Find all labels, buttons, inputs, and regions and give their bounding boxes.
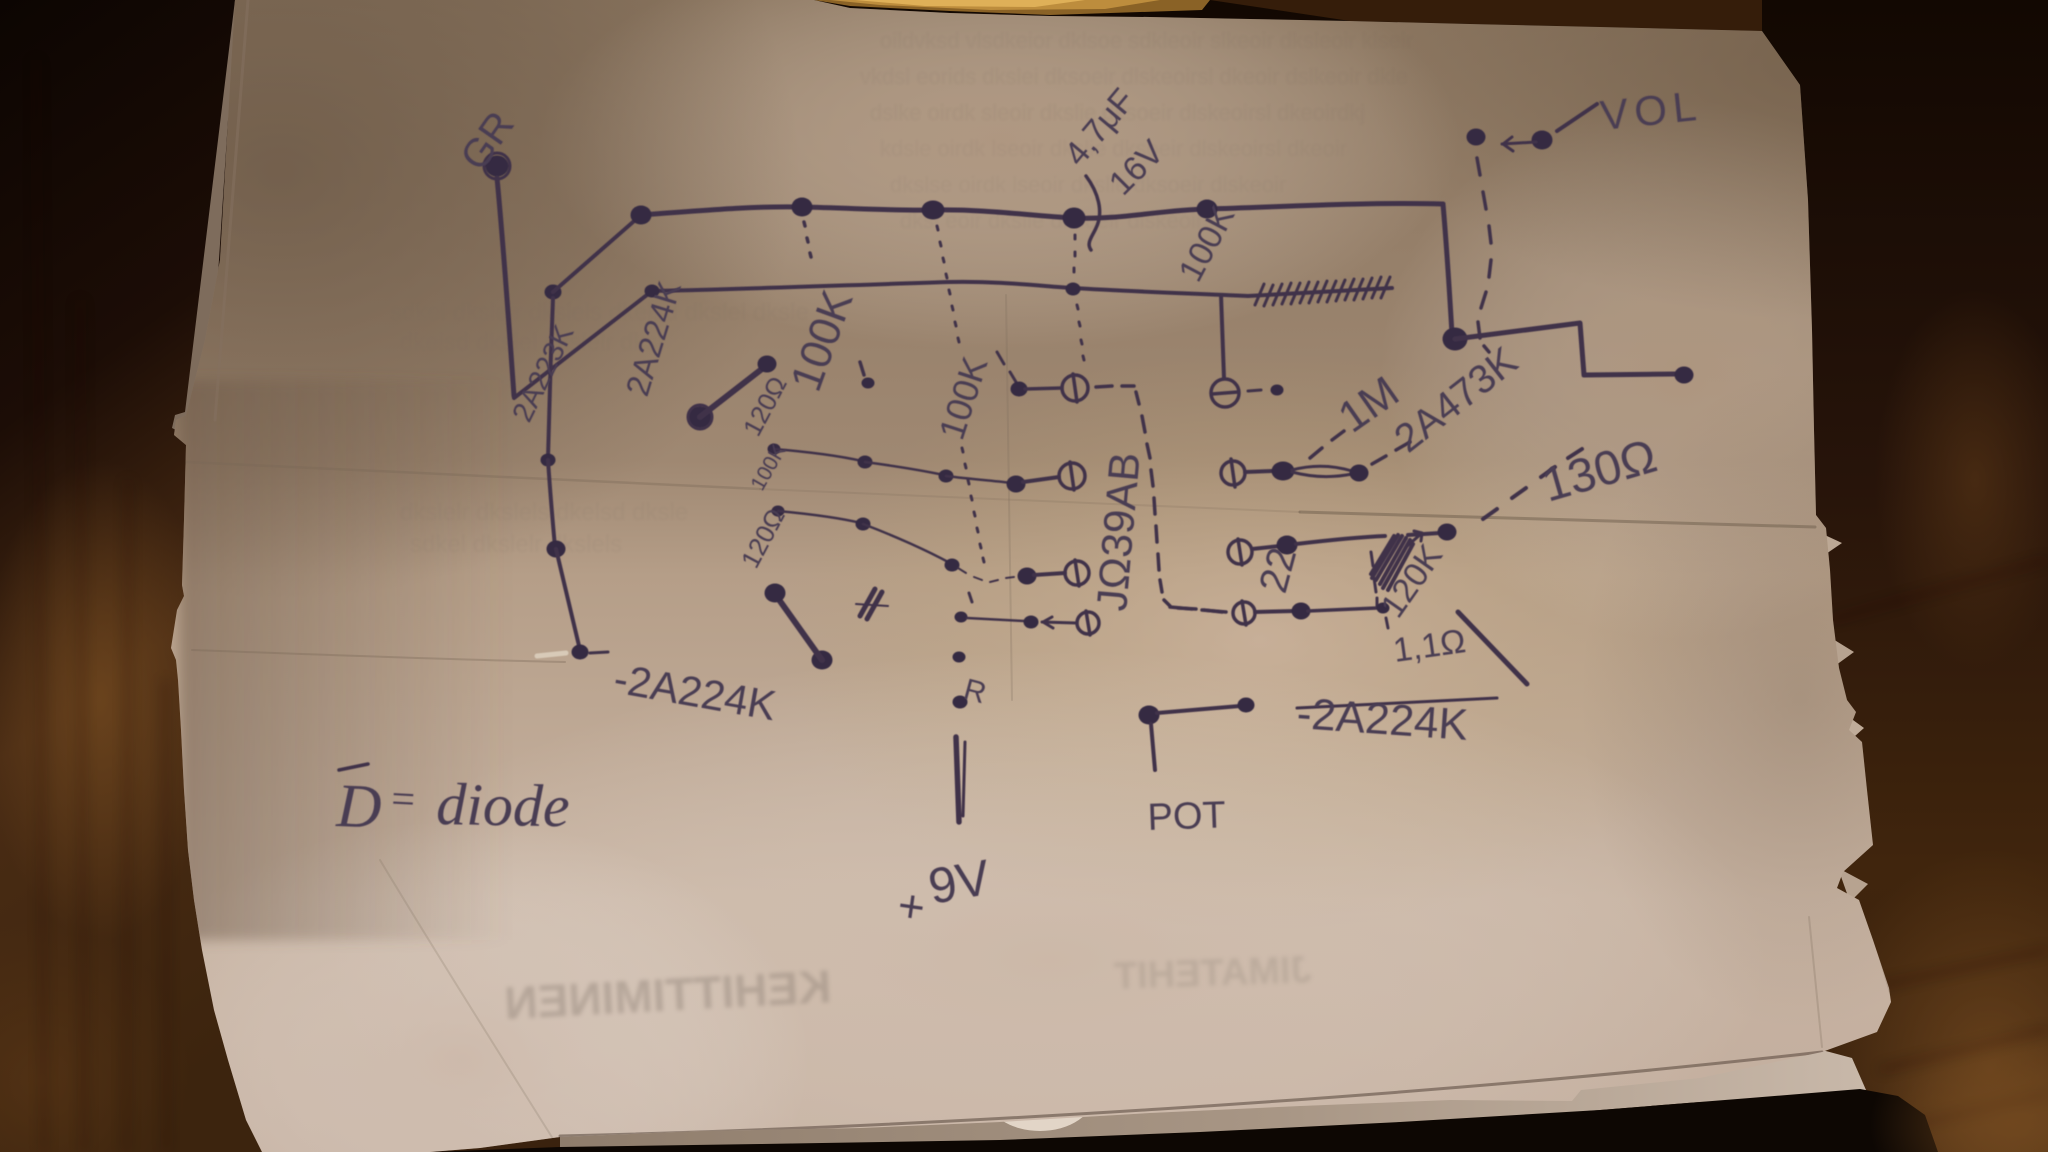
svg-text:vkdsl eorids dkslei dksoeir dl: vkdsl eorids dkslei dksoeir dlskeoirsl d… <box>860 64 1408 89</box>
svg-text:D: D <box>335 772 383 842</box>
svg-text:oildvksd vlsdkeior dklsoe sdkl: oildvksd vlsdkeior dklsoe sdkleoir slkeo… <box>880 28 1413 53</box>
svg-text:POT: POT <box>1147 794 1227 839</box>
svg-text:dkslelr dkslels dkelsd dksle: dkslelr dkslels dkelsd dksle <box>400 499 688 526</box>
svg-text:diode: diode <box>436 771 570 839</box>
svg-text:dkslse oirdk lseoir dkslie dks: dkslse oirdk lseoir dkslie dksoeir dlske… <box>890 172 1286 197</box>
svg-text:=: = <box>387 776 418 823</box>
svg-text:dkelsd dkslel dkslelr dksl: dkelsd dkslel dkslelr dksl <box>400 329 663 356</box>
svg-text:sdkel dkslelr dkslels: sdkel dkslelr dkslels <box>410 531 622 558</box>
svg-text:9V: 9V <box>924 849 995 915</box>
svg-text:sdkel dkslelr dkslels dkelsd d: sdkel dkslelr dkslels dkelsd dkslel dksl… <box>390 299 809 326</box>
svg-text:JIMATEHIT: JIMATEHIT <box>1113 949 1312 998</box>
